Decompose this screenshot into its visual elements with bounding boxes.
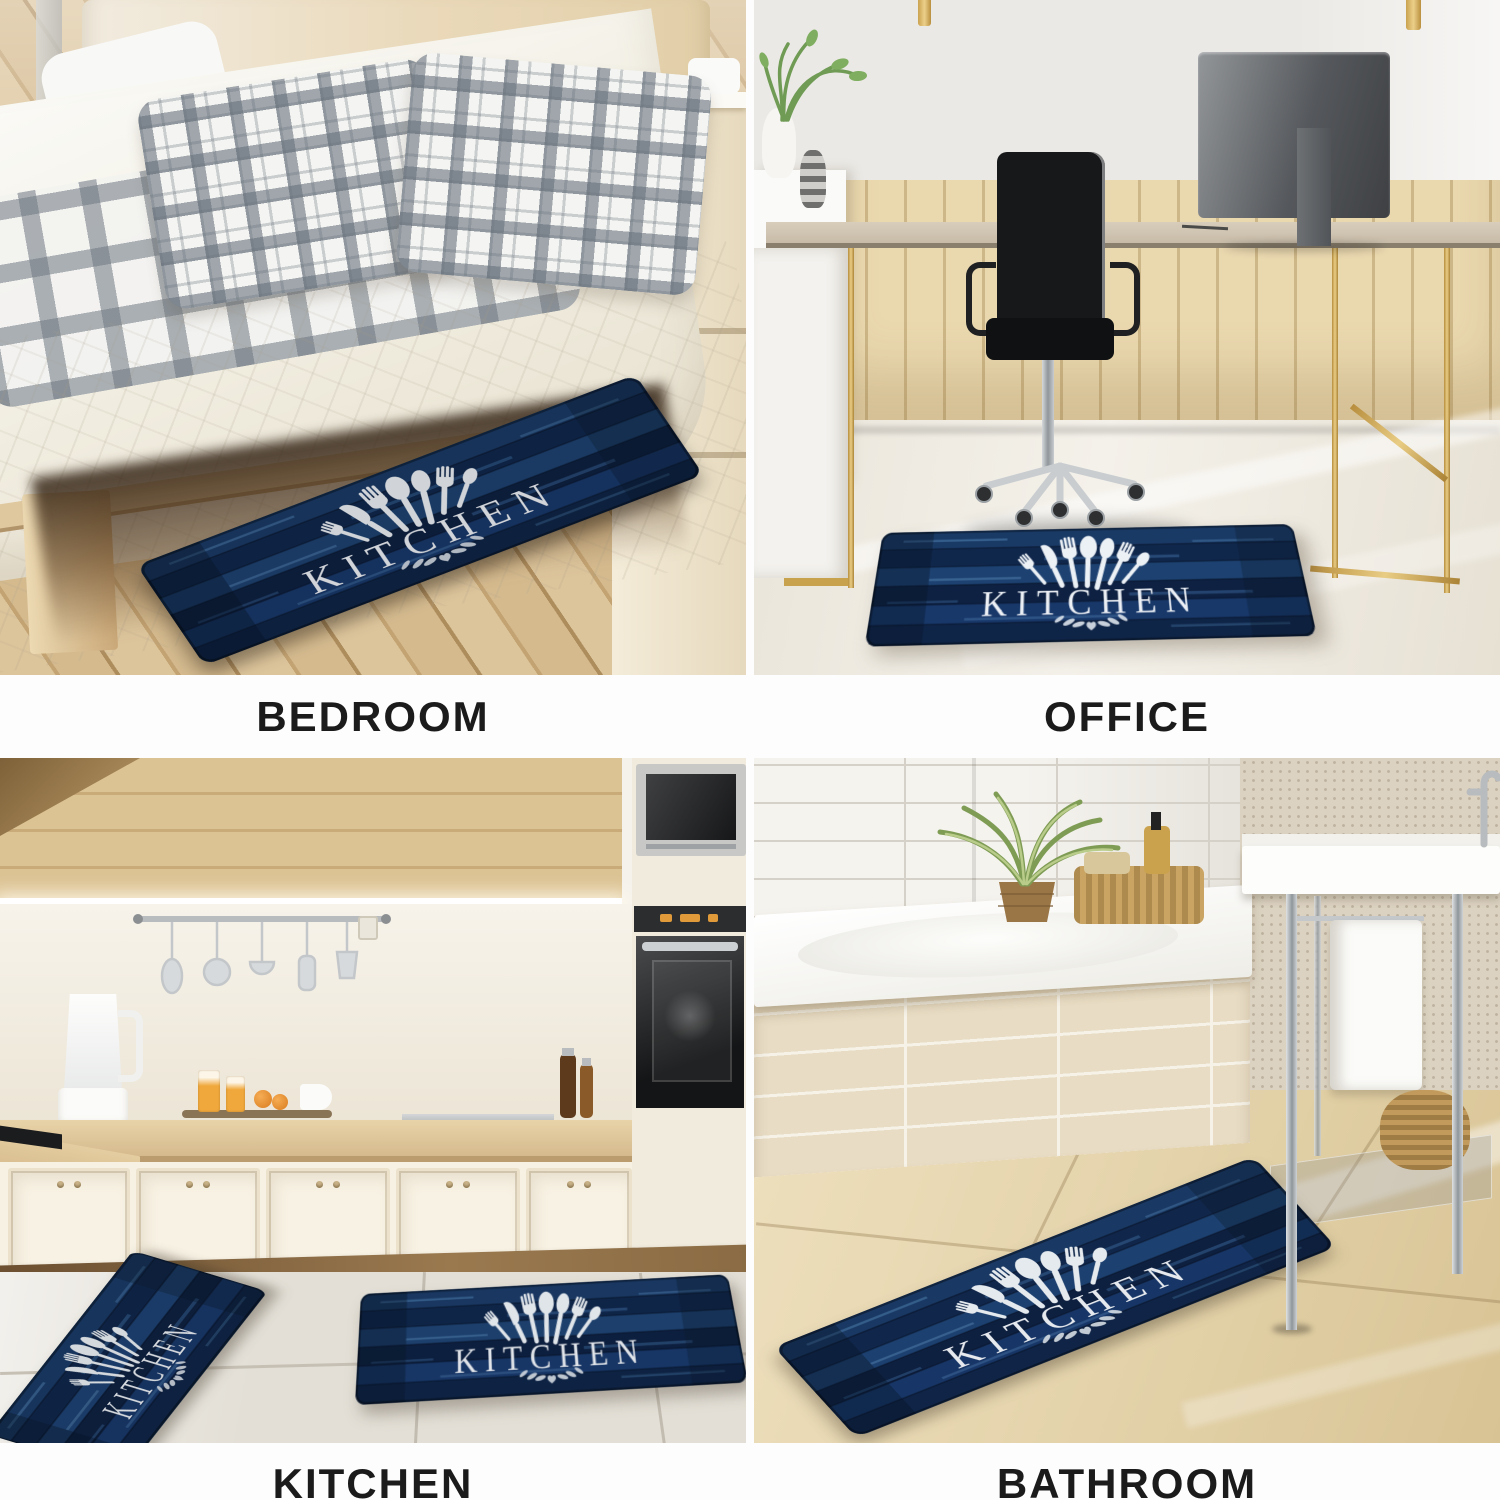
office-chair-back (997, 152, 1105, 324)
plant-icon (754, 20, 884, 130)
product-collage: BEDROOM OFFICE KITCHEN BATHROOM (0, 0, 1500, 1500)
cup (300, 1084, 332, 1110)
monitor-stand (1297, 128, 1331, 246)
sink-leg (1286, 894, 1297, 1330)
caption-bedroom: BEDROOM (0, 675, 746, 758)
juice-glass (198, 1070, 220, 1112)
caption-band-top: BEDROOM OFFICE (0, 675, 1500, 758)
kitchen-mat (865, 524, 1317, 647)
desk-top (766, 222, 1500, 248)
power-outlet (358, 916, 378, 940)
pendant-light (1406, 0, 1421, 30)
oven-display (680, 914, 700, 922)
desk-leg (1332, 248, 1338, 578)
wood-slat-wall (829, 180, 1500, 432)
sink-leg (1452, 894, 1463, 1274)
sponge (1084, 852, 1130, 874)
oil-bottle (560, 1054, 576, 1118)
chair-base (970, 452, 1150, 532)
hanging-utensils-icon (132, 908, 392, 1048)
oven-display (708, 914, 718, 922)
orange (254, 1090, 272, 1108)
cabinet-base (784, 578, 854, 586)
soap-pump (1151, 812, 1161, 830)
faucet-icon (1454, 762, 1500, 848)
sink-leg (1314, 896, 1321, 1156)
office-chair-seat (986, 318, 1114, 360)
caption-office: OFFICE (754, 675, 1500, 758)
bottle-cap (562, 1048, 574, 1056)
monitor (1198, 52, 1390, 218)
microwave-window (646, 774, 736, 840)
chair-armrest (1110, 262, 1140, 336)
pendant-light (918, 0, 931, 26)
bottle-cap (582, 1058, 591, 1066)
oven-display (660, 914, 672, 922)
scene-office (754, 0, 1500, 675)
kitchen-mat-runner (355, 1274, 746, 1405)
scene-bedroom (0, 0, 746, 675)
gutter (746, 675, 754, 758)
oil-bottle (580, 1064, 593, 1118)
desk-cabinet (754, 248, 850, 578)
plaid-pillow (395, 51, 713, 296)
desk-leg (848, 248, 854, 588)
orange (272, 1094, 288, 1110)
console-sink-top (1242, 846, 1500, 894)
wicker-tray (1074, 866, 1204, 924)
oven-handle (642, 942, 738, 951)
caption-band-bottom: KITCHEN BATHROOM (0, 1443, 1500, 1500)
soap-bottle (1144, 826, 1170, 874)
scene-kitchen (0, 758, 746, 1443)
striped-vase (800, 150, 826, 208)
juice-glass (226, 1076, 245, 1112)
oven-reflection (664, 990, 716, 1042)
blender (64, 994, 122, 1090)
towel (1330, 920, 1422, 1090)
caption-kitchen: KITCHEN (0, 1443, 746, 1500)
desk-leg (1444, 248, 1450, 593)
scene-bathroom (754, 758, 1500, 1443)
microwave-handle (646, 844, 736, 849)
caption-bathroom: BATHROOM (754, 1443, 1500, 1500)
blender-handle (118, 1010, 143, 1082)
gutter (746, 1443, 754, 1500)
